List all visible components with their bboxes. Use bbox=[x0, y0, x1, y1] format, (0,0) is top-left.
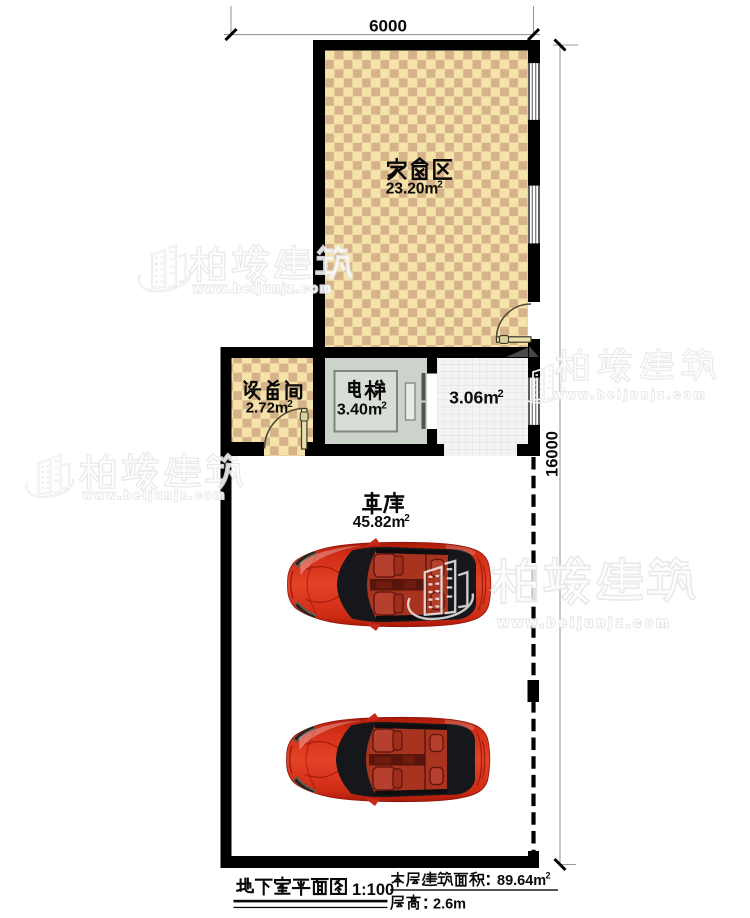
svg-text:2: 2 bbox=[287, 399, 293, 410]
svg-text:16000: 16000 bbox=[544, 431, 562, 477]
svg-text:3.40m: 3.40m bbox=[337, 402, 382, 419]
svg-text:2.6m: 2.6m bbox=[433, 897, 466, 913]
svg-text:2: 2 bbox=[546, 871, 551, 881]
svg-text:2: 2 bbox=[404, 513, 410, 524]
svg-text:23.20m: 23.20m bbox=[386, 181, 439, 198]
svg-text:www.beijunjz.com: www.beijunjz.com bbox=[553, 390, 708, 402]
svg-text:45.82m: 45.82m bbox=[353, 514, 406, 531]
svg-text:www.beijunjz.com: www.beijunjz.com bbox=[192, 282, 333, 296]
svg-text:2.72m: 2.72m bbox=[246, 400, 289, 417]
svg-text:www.beijunjz.com: www.beijunjz.com bbox=[497, 615, 672, 630]
svg-text:2: 2 bbox=[381, 401, 387, 412]
svg-text:3.06m: 3.06m bbox=[449, 388, 499, 408]
svg-text:2: 2 bbox=[497, 388, 503, 400]
svg-text:2: 2 bbox=[437, 180, 443, 191]
svg-text:89.64m: 89.64m bbox=[497, 873, 546, 889]
svg-text:6000: 6000 bbox=[369, 17, 407, 36]
svg-text:www.beijunjz.com: www.beijunjz.com bbox=[82, 490, 227, 502]
svg-text:1:100: 1:100 bbox=[352, 881, 394, 899]
